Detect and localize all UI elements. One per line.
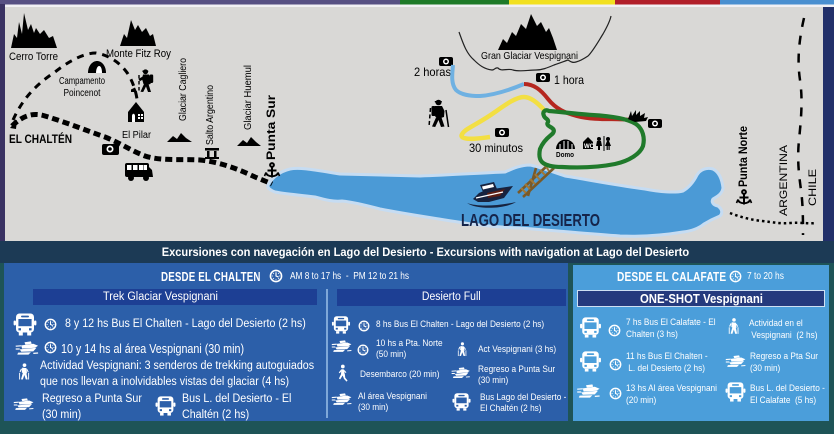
svg-text:Monte Fitz Roy: Monte Fitz Roy — [106, 48, 171, 60]
svg-text:Campamento: Campamento — [59, 76, 105, 87]
svg-text:Punta Sur: Punta Sur — [264, 95, 278, 160]
svg-text:Glaciar Huemul: Glaciar Huemul — [243, 65, 254, 130]
svg-text:LAGO DEL DESIERTO: LAGO DEL DESIERTO — [461, 210, 600, 230]
svg-text:Cerro Torre: Cerro Torre — [9, 51, 58, 63]
svg-text:Salto Argentino: Salto Argentino — [205, 85, 216, 145]
svg-text:Poincenot: Poincenot — [64, 88, 101, 99]
svg-text:EL CHALTÉN: EL CHALTÉN — [9, 131, 72, 146]
svg-text:Punta Norte: Punta Norte — [736, 126, 750, 187]
svg-text:2 horas: 2 horas — [414, 65, 451, 79]
svg-text:Domo: Domo — [556, 152, 574, 159]
svg-text:Gran Glaciar Vespignani: Gran Glaciar Vespignani — [481, 50, 578, 62]
svg-text:El Pilar: El Pilar — [122, 130, 152, 141]
svg-text:1 hora: 1 hora — [554, 73, 584, 87]
svg-text:ARGENTINA: ARGENTINA — [778, 144, 790, 216]
svg-text:30 minutos: 30 minutos — [469, 141, 523, 155]
svg-text:WC: WC — [584, 144, 595, 150]
svg-text:Glaciar Cagliero: Glaciar Cagliero — [178, 58, 189, 121]
svg-text:CHILE: CHILE — [807, 169, 819, 206]
